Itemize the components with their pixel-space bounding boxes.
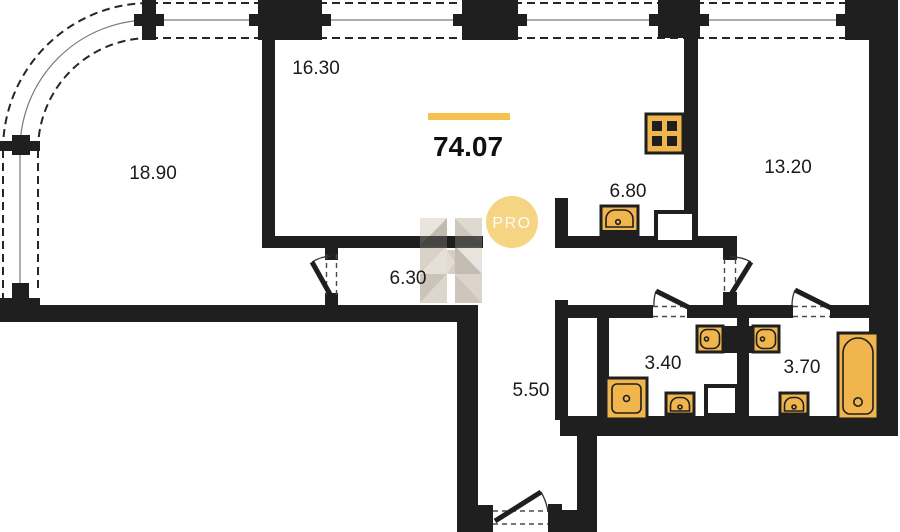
shaft-box <box>722 326 754 353</box>
sink-icon <box>780 393 808 418</box>
sink-icon <box>666 393 694 418</box>
total-area-label: 74.07 <box>433 131 503 162</box>
room-label-bathroom-2: 3.70 <box>784 357 821 378</box>
door-bathroom-1 <box>653 291 692 317</box>
wall-pier <box>462 0 518 40</box>
toilet-icon <box>753 326 779 352</box>
shower-icon <box>606 378 647 419</box>
room-label-kitchen: 6.80 <box>610 181 647 202</box>
room-label-bedroom: 13.20 <box>764 157 812 178</box>
door-bathroom-2 <box>792 290 831 317</box>
window-band-curved-corner <box>3 3 150 150</box>
room-label-hall: 5.50 <box>513 380 550 401</box>
room-label-living-room: 18.90 <box>129 163 177 184</box>
door-bedroom <box>725 257 752 296</box>
duct-kitchen <box>656 212 694 242</box>
wall-kitchen-stub <box>555 198 568 242</box>
total-area-accent-line <box>428 113 510 120</box>
room-label-corridor: 6.30 <box>390 268 427 289</box>
watermark-pro-badge: PRO <box>486 196 538 248</box>
room-label-bathroom-1: 3.40 <box>645 353 682 374</box>
watermark-h-logo <box>420 218 482 303</box>
wall-hall-left <box>457 322 478 532</box>
wall-pier <box>658 0 700 38</box>
door-entry <box>493 492 548 524</box>
wall-bath-north <box>830 305 877 318</box>
stove-icon <box>646 114 683 153</box>
wall-bottom-left <box>0 298 40 322</box>
pro-badge-text: PRO <box>492 215 531 232</box>
toilet-icon <box>697 326 723 352</box>
wall-kitchen-south <box>555 236 737 248</box>
wall-pier <box>258 0 322 40</box>
kitchen-sink-icon <box>601 206 638 237</box>
floor-plan: PRO 74.07 18.90 16.30 13.20 6.80 6.30 5.… <box>0 0 900 532</box>
room-label-room: 16.30 <box>292 58 340 79</box>
wall-hall-right <box>577 430 597 532</box>
bathtub-icon <box>838 333 878 419</box>
door-living-room <box>312 254 337 296</box>
wall-livingroom-east <box>262 38 275 248</box>
floor-plan-canvas: PRO 74.07 18.90 16.30 13.20 6.80 6.30 5.… <box>0 0 900 532</box>
duct-bath <box>706 386 737 415</box>
wall-bottom-left <box>38 305 478 322</box>
wall-pier <box>142 0 156 40</box>
wall-through-watermark <box>420 236 483 248</box>
window-band-left <box>3 150 38 298</box>
